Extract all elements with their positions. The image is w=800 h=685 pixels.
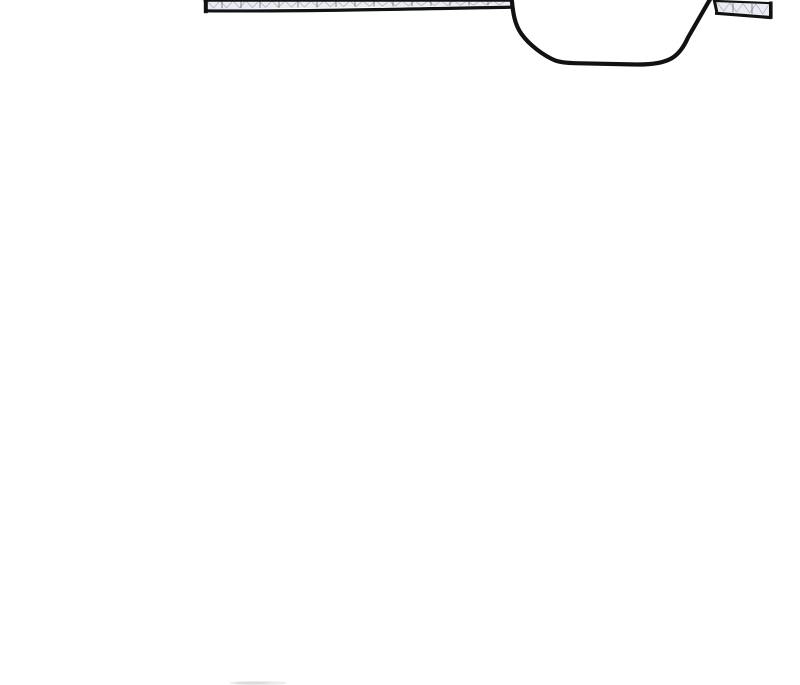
ceiling-beam-left bbox=[204, 0, 512, 13]
lamp-shade-outline bbox=[512, 0, 713, 65]
lamp-shade bbox=[512, 0, 713, 65]
comic-page-canvas bbox=[0, 0, 800, 685]
bottom-smudge bbox=[229, 681, 287, 685]
comic-panel-artwork bbox=[0, 0, 800, 685]
bottom-smudge-core bbox=[235, 682, 269, 684]
ceiling-beam-right bbox=[714, 0, 773, 19]
